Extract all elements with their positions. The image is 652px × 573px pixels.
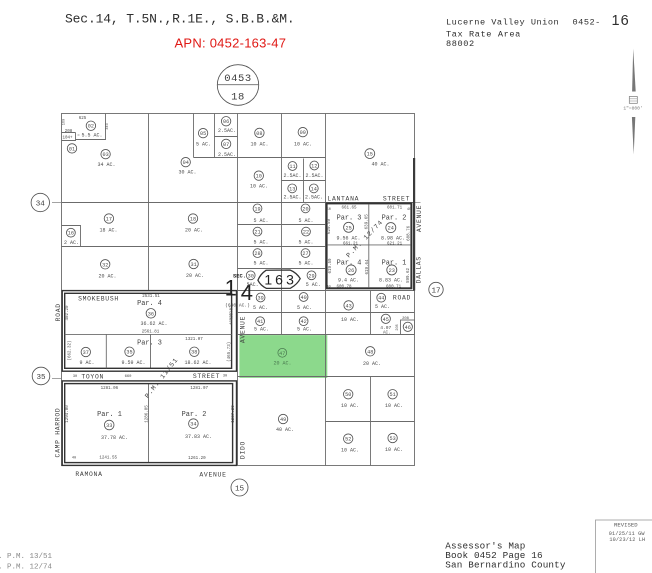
svg-text:05: 05 bbox=[200, 131, 206, 137]
svg-text:Par. 1: Par. 1 bbox=[382, 259, 407, 267]
svg-text:15: 15 bbox=[367, 152, 373, 158]
svg-text:01: 01 bbox=[69, 146, 75, 152]
svg-text:10 AC.: 10 AC. bbox=[250, 184, 268, 190]
svg-text:STREET: STREET bbox=[383, 196, 410, 203]
svg-text:10 AC.: 10 AC. bbox=[294, 142, 312, 148]
svg-text:37: 37 bbox=[83, 350, 89, 356]
svg-text:33: 33 bbox=[106, 423, 112, 429]
svg-text:44: 44 bbox=[378, 296, 384, 302]
svg-text:2.5AC.: 2.5AC. bbox=[283, 173, 301, 179]
svg-text:619.64: 619.64 bbox=[366, 259, 370, 275]
svg-text:AC.: AC. bbox=[383, 332, 391, 336]
svg-text:1: 1 bbox=[264, 271, 272, 287]
svg-text:1241.55: 1241.55 bbox=[99, 456, 117, 460]
svg-text:40: 40 bbox=[407, 208, 411, 212]
svg-text:600.78: 600.78 bbox=[336, 285, 352, 289]
svg-text:608.76: 608.76 bbox=[407, 225, 411, 241]
svg-text:SMOKEBUSH: SMOKEBUSH bbox=[78, 296, 119, 303]
svg-text:17: 17 bbox=[431, 287, 440, 295]
svg-text:403.82: 403.82 bbox=[230, 310, 234, 324]
svg-text:18 AC.: 18 AC. bbox=[99, 228, 117, 234]
svg-text:TOYON: TOYON bbox=[81, 374, 104, 381]
svg-text:P.M. 11/51: P.M. 11/51 bbox=[144, 356, 180, 399]
svg-text:2.5AC.: 2.5AC. bbox=[305, 195, 323, 201]
svg-text:50: 50 bbox=[345, 392, 351, 398]
svg-text:47: 47 bbox=[279, 351, 285, 357]
svg-text:Par. 3: Par. 3 bbox=[137, 340, 162, 348]
svg-text:600.71: 600.71 bbox=[386, 285, 402, 289]
svg-text:. P.M. 13/51: . P.M. 13/51 bbox=[0, 553, 53, 561]
svg-text:5.5 AC.: 5.5 AC. bbox=[81, 132, 102, 138]
svg-text:45: 45 bbox=[383, 317, 389, 323]
svg-text:50: 50 bbox=[327, 208, 331, 212]
svg-text:0452-: 0452- bbox=[573, 17, 601, 27]
svg-text:621.21: 621.21 bbox=[387, 242, 403, 246]
svg-text:5 AC.: 5 AC. bbox=[196, 142, 211, 148]
svg-text:639.65: 639.65 bbox=[365, 214, 369, 230]
svg-text:=: = bbox=[77, 135, 80, 139]
svg-text:3: 3 bbox=[286, 271, 294, 287]
svg-text:5 AC.: 5 AC. bbox=[253, 261, 268, 267]
svg-text:9.59 AC.: 9.59 AC. bbox=[121, 360, 145, 366]
svg-text:2561.81: 2561.81 bbox=[142, 331, 160, 335]
svg-text:2.5AC.: 2.5AC. bbox=[218, 128, 236, 134]
svg-text:10 AC.: 10 AC. bbox=[385, 403, 403, 409]
svg-text:20 AC.: 20 AC. bbox=[186, 273, 204, 279]
svg-text:43: 43 bbox=[345, 303, 351, 309]
svg-text:5 AC.: 5 AC. bbox=[253, 305, 268, 311]
svg-text:53: 53 bbox=[389, 436, 395, 442]
svg-text:2531.51: 2531.51 bbox=[142, 295, 160, 299]
svg-text:9.4 AC.: 9.4 AC. bbox=[338, 278, 359, 284]
svg-text:48: 48 bbox=[367, 349, 373, 355]
svg-text:AVENUE: AVENUE bbox=[199, 472, 226, 479]
svg-text:601.71: 601.71 bbox=[387, 206, 403, 210]
svg-text:340: 340 bbox=[106, 123, 110, 129]
svg-text:27: 27 bbox=[302, 251, 308, 257]
svg-text:Par. 4: Par. 4 bbox=[337, 259, 362, 267]
svg-text:2.5AC.: 2.5AC. bbox=[305, 173, 323, 179]
svg-text:16: 16 bbox=[68, 231, 74, 237]
svg-text:03: 03 bbox=[102, 152, 108, 158]
svg-text:Lucerne Valley Union: Lucerne Valley Union bbox=[446, 17, 559, 27]
svg-text:20: 20 bbox=[302, 206, 308, 212]
svg-text:8.98 AC.: 8.98 AC. bbox=[381, 236, 405, 242]
svg-text:1287.29: 1287.29 bbox=[232, 405, 236, 423]
svg-text:5 AC.: 5 AC. bbox=[306, 282, 321, 288]
svg-text:DIDO: DIDO bbox=[240, 441, 247, 459]
svg-text:20 AC.: 20 AC. bbox=[363, 361, 381, 367]
svg-text:11: 11 bbox=[289, 164, 295, 170]
svg-text:37.83 AC.: 37.83 AC. bbox=[185, 434, 212, 440]
svg-text:402.20: 402.20 bbox=[66, 305, 70, 321]
svg-text:1281.06: 1281.06 bbox=[101, 387, 119, 391]
svg-text:34: 34 bbox=[36, 201, 46, 209]
svg-text:AVENUE: AVENUE bbox=[240, 316, 247, 343]
svg-text:. P.M. 12/74: . P.M. 12/74 bbox=[0, 564, 53, 572]
svg-text:599.62: 599.62 bbox=[407, 267, 411, 283]
svg-text:5 AC.: 5 AC. bbox=[253, 239, 268, 245]
svg-text:208: 208 bbox=[396, 324, 400, 330]
svg-text:31: 31 bbox=[190, 262, 196, 268]
svg-text:02: 02 bbox=[88, 124, 94, 130]
svg-text:07: 07 bbox=[223, 142, 229, 148]
svg-text:40 AC.: 40 AC. bbox=[276, 427, 294, 433]
svg-text:5 AC.: 5 AC. bbox=[298, 218, 313, 224]
svg-text:104+: 104+ bbox=[62, 137, 73, 141]
svg-text:Tax Rate Area: Tax Rate Area bbox=[446, 30, 521, 40]
svg-text:5 AC.: 5 AC. bbox=[253, 218, 268, 224]
svg-text:(662.32): (662.32) bbox=[67, 340, 72, 360]
svg-text:1261.20: 1261.20 bbox=[188, 457, 206, 461]
svg-text:30: 30 bbox=[223, 374, 227, 378]
svg-text:36.62 AC.: 36.62 AC. bbox=[140, 321, 167, 327]
svg-text:22: 22 bbox=[303, 230, 309, 236]
svg-text:15: 15 bbox=[235, 486, 245, 494]
svg-text:2 AC.: 2 AC. bbox=[64, 240, 79, 246]
svg-text:16: 16 bbox=[612, 13, 630, 29]
svg-text:88002: 88002 bbox=[446, 39, 475, 49]
svg-text:AVENUE: AVENUE bbox=[416, 205, 423, 232]
svg-text:35: 35 bbox=[126, 350, 132, 356]
svg-text:20 AC.: 20 AC. bbox=[273, 361, 291, 367]
svg-text:STREET: STREET bbox=[193, 373, 220, 380]
svg-text:1: 1 bbox=[225, 276, 237, 301]
svg-text:5 AC.: 5 AC. bbox=[298, 239, 313, 245]
svg-text:Sec.14, T.5N.,R.1E., S.B.B.&M.: Sec.14, T.5N.,R.1E., S.B.B.&M. bbox=[65, 12, 295, 27]
svg-text:34: 34 bbox=[190, 422, 196, 428]
svg-text:APN: 0452-163-47: APN: 0452-163-47 bbox=[175, 36, 287, 51]
svg-text:5 AC.: 5 AC. bbox=[298, 261, 313, 267]
svg-text:0453: 0453 bbox=[224, 73, 252, 85]
svg-text:625: 625 bbox=[79, 117, 87, 121]
svg-text:10 AC.: 10 AC. bbox=[341, 317, 359, 323]
svg-text:REVISED: REVISED bbox=[614, 522, 638, 529]
svg-text:5 AC.: 5 AC. bbox=[254, 327, 269, 333]
svg-text:629.59: 629.59 bbox=[328, 218, 332, 234]
svg-text:49: 49 bbox=[280, 417, 286, 423]
svg-text:18.62 AC.: 18.62 AC. bbox=[184, 360, 211, 366]
svg-text:38: 38 bbox=[191, 350, 197, 356]
svg-text:ROAD: ROAD bbox=[393, 295, 411, 302]
svg-text:10: 10 bbox=[256, 174, 262, 180]
svg-text:20 AC.: 20 AC. bbox=[98, 273, 116, 279]
svg-text:12: 12 bbox=[311, 164, 317, 170]
svg-text:619.59: 619.59 bbox=[329, 258, 333, 274]
svg-text:28: 28 bbox=[254, 251, 260, 257]
svg-text:5AC.: 5AC. bbox=[247, 282, 259, 288]
svg-text:34 AC.: 34 AC. bbox=[97, 162, 115, 168]
svg-text:08: 08 bbox=[256, 131, 262, 137]
svg-text:6: 6 bbox=[275, 271, 283, 287]
svg-text:13: 13 bbox=[289, 186, 295, 192]
svg-text:25: 25 bbox=[345, 225, 351, 231]
svg-text:41: 41 bbox=[257, 319, 263, 325]
svg-text:8.83 AC.: 8.83 AC. bbox=[379, 278, 403, 284]
svg-text:40: 40 bbox=[72, 456, 76, 460]
svg-text:ROAD: ROAD bbox=[55, 303, 62, 321]
svg-text:9.56 AC.: 9.56 AC. bbox=[336, 236, 360, 242]
svg-text:36: 36 bbox=[148, 311, 154, 317]
svg-text:10 AC.: 10 AC. bbox=[341, 447, 359, 453]
svg-text:4.07: 4.07 bbox=[380, 325, 391, 331]
svg-text:30: 30 bbox=[73, 375, 77, 379]
svg-text:2.5AC.: 2.5AC. bbox=[283, 195, 301, 201]
svg-text:10 AC.: 10 AC. bbox=[341, 403, 359, 409]
svg-text:21: 21 bbox=[254, 230, 260, 236]
svg-text:1"=800': 1"=800' bbox=[623, 106, 642, 112]
svg-text:42: 42 bbox=[300, 319, 306, 325]
svg-text:1294.80: 1294.80 bbox=[66, 405, 70, 423]
svg-text:(465.73): (465.73) bbox=[227, 342, 232, 362]
svg-text:5 AC.: 5 AC. bbox=[297, 305, 312, 311]
svg-text:2.5AC.: 2.5AC. bbox=[218, 152, 236, 158]
svg-text:35: 35 bbox=[36, 374, 46, 382]
svg-text:04: 04 bbox=[183, 160, 189, 166]
svg-text:29: 29 bbox=[308, 273, 314, 279]
svg-text:208: 208 bbox=[402, 317, 410, 321]
svg-text:169: 169 bbox=[63, 119, 67, 125]
svg-text:24: 24 bbox=[388, 226, 394, 232]
svg-text:5 AC.: 5 AC. bbox=[297, 327, 312, 333]
svg-text:23: 23 bbox=[389, 268, 395, 274]
svg-text:9 AC.: 9 AC. bbox=[79, 360, 94, 366]
svg-text:(640 AC.): (640 AC.) bbox=[225, 303, 250, 309]
svg-text:26: 26 bbox=[348, 268, 354, 274]
svg-text:30: 30 bbox=[248, 273, 254, 279]
svg-text:19: 19 bbox=[254, 206, 260, 212]
svg-text:1321.07: 1321.07 bbox=[185, 338, 203, 342]
svg-text:20 AC.: 20 AC. bbox=[185, 228, 203, 234]
svg-text:51: 51 bbox=[389, 392, 395, 398]
svg-text:10 AC.: 10 AC. bbox=[385, 447, 403, 453]
svg-text:10/23/12 LH: 10/23/12 LH bbox=[609, 537, 645, 543]
svg-text:30 AC.: 30 AC. bbox=[178, 169, 196, 175]
svg-text:18: 18 bbox=[231, 92, 245, 104]
svg-text:40: 40 bbox=[326, 285, 330, 289]
svg-text:Par. 3: Par. 3 bbox=[337, 214, 362, 222]
svg-text:17: 17 bbox=[106, 217, 112, 223]
svg-text:09: 09 bbox=[300, 130, 306, 136]
svg-text:1286.05: 1286.05 bbox=[146, 405, 150, 423]
svg-text:46: 46 bbox=[405, 325, 411, 331]
svg-text:40 AC.: 40 AC. bbox=[371, 162, 389, 168]
svg-text:32: 32 bbox=[102, 262, 108, 268]
svg-text:1281.07: 1281.07 bbox=[190, 387, 208, 391]
svg-text:Par. 4: Par. 4 bbox=[137, 300, 162, 308]
svg-text:Par. 1: Par. 1 bbox=[97, 411, 122, 419]
svg-text:37.78 AC.: 37.78 AC. bbox=[101, 435, 128, 441]
svg-text:5 AC.: 5 AC. bbox=[375, 304, 390, 310]
svg-text:52: 52 bbox=[345, 437, 351, 443]
svg-text:Par. 2: Par. 2 bbox=[182, 411, 207, 419]
svg-text:208: 208 bbox=[65, 130, 73, 134]
svg-text:18: 18 bbox=[190, 217, 196, 223]
svg-text:RAMONA: RAMONA bbox=[75, 471, 102, 478]
svg-text:DALLAS: DALLAS bbox=[416, 256, 423, 283]
svg-text:06: 06 bbox=[223, 119, 229, 125]
svg-text:CAMP HARROD: CAMP HARROD bbox=[54, 408, 61, 458]
svg-text:LANTANA: LANTANA bbox=[327, 196, 359, 203]
svg-text:661.65: 661.65 bbox=[341, 206, 357, 210]
svg-text:14: 14 bbox=[311, 186, 317, 192]
svg-text:39: 39 bbox=[257, 296, 263, 302]
svg-text:660: 660 bbox=[125, 375, 133, 379]
svg-text:40: 40 bbox=[300, 295, 306, 301]
svg-text:10 AC.: 10 AC. bbox=[250, 142, 268, 148]
svg-text:San Bernardino County: San Bernardino County bbox=[445, 560, 566, 571]
svg-text:Par. 2: Par. 2 bbox=[382, 214, 407, 222]
